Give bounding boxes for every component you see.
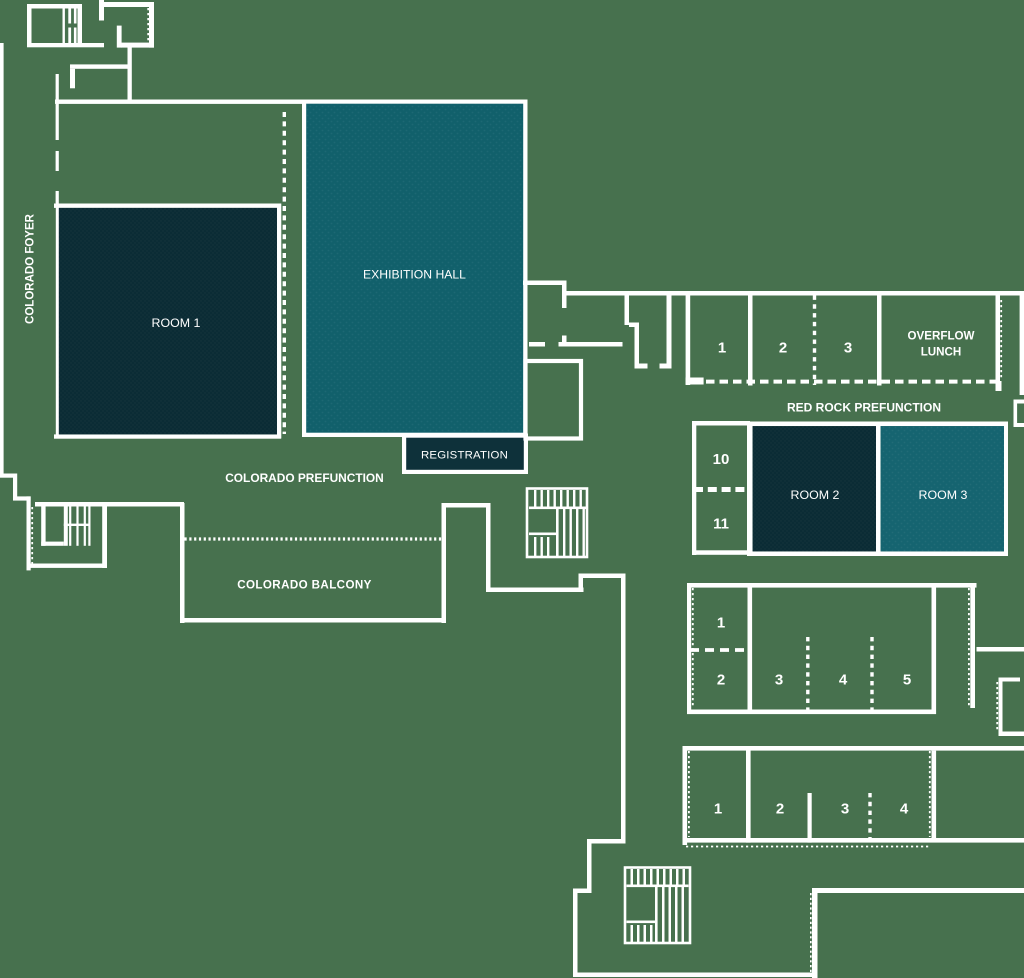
svg-text:ROOM 2: ROOM 2 <box>791 488 840 502</box>
svg-text:4: 4 <box>900 801 909 818</box>
svg-text:1: 1 <box>717 615 725 632</box>
svg-text:COLORADO FOYER: COLORADO FOYER <box>25 213 37 324</box>
svg-text:EXHIBITION HALL: EXHIBITION HALL <box>363 268 466 282</box>
svg-text:1: 1 <box>718 340 726 357</box>
svg-text:5: 5 <box>903 672 911 689</box>
svg-text:RED ROCK PREFUNCTION: RED ROCK PREFUNCTION <box>787 401 941 415</box>
svg-text:10: 10 <box>713 451 730 468</box>
svg-text:COLORADO BALCONY: COLORADO BALCONY <box>237 579 372 592</box>
svg-text:3: 3 <box>841 801 849 818</box>
svg-text:3: 3 <box>844 340 852 357</box>
svg-text:LUNCH: LUNCH <box>921 346 962 359</box>
svg-text:4: 4 <box>839 672 848 689</box>
svg-text:11: 11 <box>713 516 729 533</box>
svg-text:REGISTRATION: REGISTRATION <box>421 450 508 462</box>
svg-text:3: 3 <box>775 672 783 689</box>
svg-text:ROOM 1: ROOM 1 <box>152 316 201 330</box>
svg-text:2: 2 <box>776 801 784 818</box>
svg-text:2: 2 <box>717 672 725 689</box>
svg-text:OVERFLOW: OVERFLOW <box>908 330 975 343</box>
svg-text:COLORADO PREFUNCTION: COLORADO PREFUNCTION <box>225 471 384 485</box>
svg-text:2: 2 <box>779 340 787 357</box>
svg-text:1: 1 <box>714 801 722 818</box>
svg-text:ROOM 3: ROOM 3 <box>919 488 968 502</box>
